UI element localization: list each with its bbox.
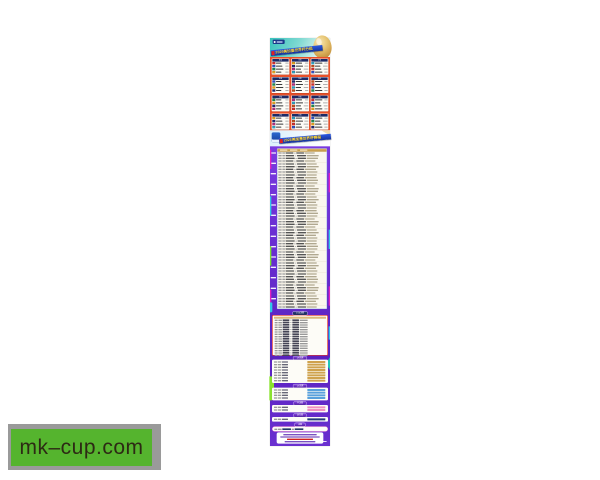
edge-accent [270, 150, 271, 169]
text-mark [278, 367, 282, 368]
team-flag-icon [311, 105, 314, 107]
text-mark [307, 281, 318, 282]
text-mark [278, 338, 282, 339]
text-mark [307, 180, 318, 181]
text-mark [275, 333, 278, 334]
text-mark [285, 127, 288, 128]
text-mark [305, 185, 315, 186]
text-mark [286, 276, 294, 277]
text-mark [304, 121, 308, 122]
text-mark [276, 72, 281, 73]
text-mark [292, 322, 299, 324]
text-mark [282, 171, 285, 172]
groups-grid: A组B组C组D组E组F组G组H组I组J组K组L组 [272, 59, 329, 130]
text-mark [292, 331, 299, 332]
text-mark [295, 72, 301, 73]
text-mark [283, 331, 290, 332]
text-mark [286, 196, 294, 197]
text-mark [283, 329, 290, 330]
text-mark [286, 171, 294, 172]
edge-accent [329, 173, 330, 192]
text-mark [324, 99, 327, 100]
date-label [271, 298, 276, 299]
watermark: mk–cup.com [11, 429, 152, 466]
text-mark [282, 295, 285, 296]
text-mark [274, 361, 277, 362]
text-mark [307, 246, 318, 247]
text-mark [296, 169, 304, 170]
text-mark [274, 375, 277, 376]
text-mark [323, 66, 328, 67]
schedule-title: 2026美加墨世界杯赛程 [284, 136, 322, 143]
text-mark [286, 292, 294, 293]
text-mark [305, 99, 308, 100]
team-row [292, 89, 308, 92]
text-mark [278, 324, 282, 325]
text-mark [295, 69, 300, 70]
text-mark [292, 336, 299, 337]
team-flag-icon [292, 71, 295, 73]
text-mark [324, 90, 327, 91]
text-mark [286, 174, 295, 175]
text-mark [282, 407, 288, 409]
text-mark [282, 380, 288, 382]
text-mark [305, 301, 316, 302]
text-mark [286, 158, 295, 159]
text-mark [307, 191, 318, 192]
text-mark [324, 81, 327, 82]
text-mark [282, 279, 285, 280]
text-mark [292, 340, 299, 342]
text-mark [286, 262, 294, 264]
text-mark [307, 287, 319, 288]
text-mark [275, 354, 278, 355]
text-mark [282, 395, 288, 397]
text-mark [282, 180, 285, 181]
text-mark [274, 397, 277, 398]
text-mark [283, 326, 290, 327]
text-mark [305, 152, 315, 153]
text-mark [276, 121, 282, 122]
text-mark [305, 226, 316, 227]
text-mark [274, 372, 277, 373]
text-mark [300, 324, 308, 325]
text-mark [282, 281, 285, 282]
text-mark [276, 66, 282, 67]
text-mark [307, 273, 317, 274]
text-mark [278, 207, 281, 208]
text-mark [292, 329, 299, 330]
text-mark [282, 276, 285, 277]
text-mark [292, 345, 299, 347]
text-mark [286, 295, 294, 296]
team-flag-icon [311, 65, 314, 67]
text-mark [283, 338, 290, 340]
text-mark [324, 124, 328, 125]
text-mark [282, 287, 285, 288]
group-card: L组 [311, 114, 329, 130]
team-flag-icon [272, 108, 275, 110]
team-row [292, 107, 308, 110]
text-mark [286, 202, 294, 203]
text-mark [305, 292, 316, 293]
text-mark [278, 369, 282, 370]
text-mark [323, 121, 328, 122]
team-row [311, 126, 327, 129]
text-mark [282, 298, 285, 299]
text-mark [297, 279, 306, 281]
text-mark [303, 87, 308, 88]
text-mark [296, 243, 304, 244]
text-mark [307, 262, 317, 263]
text-mark [286, 268, 294, 269]
text-mark [278, 265, 281, 266]
text-mark [300, 333, 308, 334]
schedule-title-ribbon: 2026美加墨世界杯赛程 [279, 134, 331, 144]
text-mark [286, 279, 294, 281]
text-mark [307, 254, 319, 255]
text-mark [295, 84, 302, 85]
text-mark [278, 331, 282, 332]
text-mark [305, 202, 316, 203]
text-mark [315, 81, 322, 82]
result-block [307, 397, 325, 399]
text-mark [286, 290, 295, 292]
team-flag-icon [311, 89, 314, 91]
text-mark [278, 389, 282, 390]
text-mark [286, 218, 294, 219]
text-mark [307, 215, 318, 216]
text-mark [282, 292, 285, 293]
text-mark [278, 295, 281, 296]
text-mark [296, 202, 304, 203]
text-mark [282, 174, 285, 175]
text-mark [303, 105, 308, 106]
text-mark [282, 232, 285, 233]
date-label [271, 163, 276, 164]
text-mark [286, 210, 294, 211]
text-mark [278, 380, 282, 381]
watermark-text: mk–cup.com [19, 436, 143, 460]
text-mark [295, 108, 301, 109]
date-label [271, 194, 276, 195]
text-mark [282, 306, 285, 307]
text-mark [296, 193, 304, 194]
stage-box-round16 [272, 360, 328, 383]
text-mark [307, 232, 319, 233]
text-mark [278, 345, 282, 346]
text-mark [324, 108, 327, 109]
text-mark [307, 295, 317, 296]
text-mark [282, 202, 285, 203]
text-mark [278, 224, 281, 225]
text-mark [286, 215, 295, 216]
text-mark [307, 199, 319, 200]
text-mark [324, 118, 327, 119]
text-mark [278, 180, 281, 181]
stage-pill-semi: 半决赛 [293, 401, 306, 405]
match-row [273, 418, 326, 421]
team-flag-icon [311, 120, 314, 122]
text-mark [297, 303, 306, 305]
result-block [307, 409, 325, 411]
text-mark [278, 347, 282, 348]
text-mark [315, 118, 322, 119]
text-mark [282, 224, 285, 225]
text-mark [278, 270, 281, 271]
text-mark [278, 226, 281, 227]
text-mark [278, 202, 281, 203]
text-mark [282, 221, 285, 222]
text-mark [282, 158, 285, 159]
text-mark [323, 102, 328, 103]
team-row [272, 89, 288, 92]
date-label [271, 267, 276, 268]
stage-pill-round16: 1/8决赛 [293, 356, 307, 360]
text-mark [282, 262, 285, 263]
text-mark [278, 279, 281, 280]
text-mark [282, 207, 285, 208]
text-mark [274, 419, 277, 420]
team-row [311, 107, 327, 110]
text-mark [298, 174, 306, 175]
text-mark [278, 232, 281, 233]
team-flag-icon [272, 68, 275, 70]
text-mark [300, 352, 308, 353]
text-mark [305, 259, 316, 260]
text-mark [298, 182, 306, 183]
text-mark [315, 87, 321, 88]
text-mark [276, 63, 281, 64]
text-mark [300, 319, 308, 320]
team-flag-icon [272, 71, 275, 73]
text-mark [282, 248, 285, 249]
text-mark [292, 319, 299, 321]
text-mark [278, 218, 281, 219]
text-mark [307, 221, 319, 222]
text-mark [278, 352, 282, 353]
team-flag-icon [272, 126, 275, 128]
text-mark [274, 377, 277, 378]
text-mark [278, 306, 281, 307]
match-row [273, 409, 326, 412]
text-mark [278, 343, 282, 344]
text-mark [315, 99, 322, 100]
date-label [271, 204, 276, 205]
text-mark [282, 254, 285, 255]
text-mark [307, 265, 319, 266]
text-mark [278, 259, 281, 260]
text-mark [324, 63, 327, 64]
text-mark [283, 343, 290, 345]
schedule-rows [277, 152, 326, 309]
text-mark [307, 204, 318, 205]
text-mark [286, 160, 294, 161]
text-mark [307, 279, 318, 280]
text-mark [298, 240, 306, 241]
text-mark [298, 232, 306, 233]
logo-dot-icon [274, 41, 276, 43]
text-mark [282, 182, 285, 183]
text-mark [286, 270, 294, 272]
text-mark [278, 155, 281, 156]
team-flag-icon [272, 65, 275, 67]
text-mark [296, 177, 304, 178]
groups-title: 2026美加墨世界杯分组 [275, 47, 313, 55]
text-mark [305, 251, 315, 252]
logo-wordmark [277, 41, 283, 42]
text-mark [300, 350, 308, 351]
text-mark [282, 265, 285, 266]
text-mark [282, 226, 285, 227]
groups-section: A组B组C组D组E组F组G组H组I组J组K组L组 [270, 57, 330, 130]
text-mark [276, 90, 281, 91]
team-flag-icon [292, 117, 295, 119]
text-mark [307, 166, 319, 167]
edge-accent [329, 230, 330, 249]
match-row [273, 397, 326, 400]
text-mark [292, 343, 299, 345]
text-mark [286, 207, 295, 208]
text-mark [298, 224, 306, 225]
text-mark [307, 207, 317, 208]
text-mark [297, 180, 306, 181]
text-mark [282, 191, 285, 192]
text-mark [286, 193, 294, 194]
text-mark [278, 319, 282, 320]
text-mark [282, 246, 285, 247]
text-mark [282, 375, 288, 376]
group-card: D组 [272, 77, 290, 93]
text-mark [292, 324, 299, 326]
text-mark [285, 81, 288, 82]
text-mark [324, 87, 328, 88]
text-mark [295, 121, 302, 122]
text-mark [297, 221, 306, 222]
text-mark [282, 284, 285, 285]
group-card: E组 [291, 77, 309, 93]
text-mark [274, 407, 277, 408]
text-mark [300, 336, 308, 337]
schedule-row [277, 308, 326, 309]
result-block [307, 380, 325, 382]
text-mark [282, 215, 285, 216]
text-mark [307, 237, 318, 238]
text-mark [275, 322, 278, 323]
date-label [271, 277, 276, 278]
team-flag-icon [292, 108, 295, 110]
text-mark [285, 121, 288, 122]
text-mark [276, 81, 281, 82]
text-mark [296, 185, 304, 186]
text-mark [286, 182, 295, 183]
text-mark [282, 204, 285, 205]
text-mark [307, 229, 317, 230]
text-mark [278, 254, 281, 255]
text-mark [282, 361, 288, 363]
text-mark [282, 364, 288, 365]
text-mark [298, 290, 306, 292]
text-mark [278, 326, 282, 327]
text-mark [305, 127, 308, 128]
text-mark [278, 235, 281, 236]
group-card: J组 [272, 114, 290, 130]
text-mark [324, 72, 327, 73]
text-mark [283, 340, 290, 342]
date-label [271, 225, 276, 226]
text-mark [283, 350, 290, 352]
text-mark [307, 298, 319, 299]
text-mark [282, 199, 285, 200]
text-mark [307, 213, 318, 214]
text-mark [324, 69, 328, 70]
text-mark [282, 270, 285, 271]
text-mark [286, 226, 294, 227]
text-mark [300, 329, 308, 330]
text-mark [282, 152, 285, 153]
ribbon-tag-icon [280, 139, 283, 143]
text-mark [274, 369, 277, 370]
poster-header: 2026美加墨世界杯分组 [270, 38, 330, 57]
text-mark [283, 347, 290, 349]
text-mark [278, 210, 281, 211]
text-mark [296, 259, 304, 260]
text-mark [276, 69, 283, 70]
text-mark [307, 174, 317, 175]
text-mark [275, 352, 278, 353]
team-flag-icon [292, 123, 295, 125]
text-mark [295, 124, 300, 125]
text-mark [278, 182, 281, 183]
text-mark [304, 66, 308, 67]
date-label [271, 215, 276, 216]
text-mark [297, 188, 306, 189]
team-flag-icon [292, 62, 295, 64]
team-flag-icon [311, 99, 314, 101]
text-mark [298, 281, 306, 283]
text-mark [278, 229, 281, 230]
text-mark [282, 193, 285, 194]
text-mark [282, 259, 285, 260]
text-mark [286, 303, 294, 305]
text-mark [286, 246, 294, 247]
text-mark [305, 169, 316, 170]
edge-accent [329, 326, 330, 339]
date-label [271, 236, 276, 237]
team-flag-icon [272, 99, 275, 101]
worldcup-poster: 2026美加墨世界杯分组 A组B组C组D组E组F组G组H组I组J组K组L组 20… [270, 38, 330, 446]
text-mark [278, 160, 281, 161]
text-mark [298, 166, 306, 167]
text-mark [278, 298, 281, 299]
text-mark [300, 326, 308, 327]
text-mark [286, 237, 294, 238]
text-mark [278, 322, 282, 323]
text-mark [286, 169, 294, 170]
stage-box-final [272, 426, 328, 431]
text-mark [286, 243, 294, 244]
text-mark [296, 152, 304, 153]
text-mark [305, 108, 308, 109]
text-mark [295, 105, 300, 106]
text-mark [296, 276, 304, 277]
text-mark [282, 229, 285, 230]
text-mark [296, 292, 304, 293]
text-mark [282, 210, 285, 211]
text-mark [278, 171, 281, 172]
team-row [272, 107, 288, 110]
text-mark [300, 345, 308, 346]
